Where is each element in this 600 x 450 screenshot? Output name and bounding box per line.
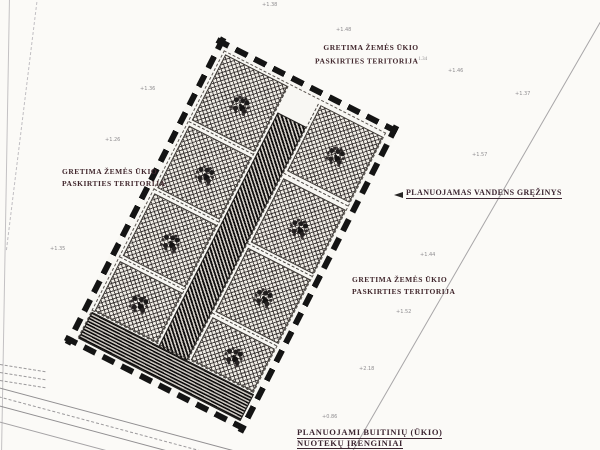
spot-elevation: +1.35 (50, 246, 65, 252)
road-line-bottom-dashed (0, 395, 313, 450)
tree-symbol (297, 226, 301, 230)
road-line-bottom-2 (0, 404, 313, 450)
tree-symbol (238, 103, 242, 107)
spot-elevation: +1.44 (420, 252, 435, 258)
label-planned-sewage-facilities: PLANUOJAMI BUITINIŲ (ŪKIO) NUOTEKŲ ĮRENG… (297, 428, 442, 449)
spot-elevation: +2.18 (359, 366, 374, 372)
spot-elevation: +1.36 (140, 86, 155, 92)
tick-dash-left-1 (0, 364, 46, 372)
spot-elevation: +1.37 (515, 91, 530, 97)
tree-symbol (137, 302, 141, 306)
spot-elevation: +1.26 (105, 137, 120, 143)
spot-elevation: +1.46 (448, 68, 463, 74)
label-line: PASKIRTIES TERITORIJA1.34 (315, 54, 427, 68)
label-line: GRETIMA ŽEMĖS ŪKIO (62, 166, 165, 178)
spot-elevation: +1.57 (472, 152, 487, 158)
label-line: PASKIRTIES TERITORIJA (62, 178, 165, 190)
label-line: GRETIMA ŽEMĖS ŪKIO (315, 42, 427, 54)
tree-symbol (261, 296, 265, 300)
label-planned-water-borehole: PLANUOJAMAS VANDENS GRĘŽINYS (406, 188, 562, 199)
label-adjacent-territory-left: GRETIMA ŽEMĖS ŪKIO PASKIRTIES TERITORIJA (62, 166, 165, 190)
label-line: GRETIMA ŽEMĖS ŪKIO (352, 274, 455, 286)
label-adjacent-territory-top: GRETIMA ŽEMĖS ŪKIO PASKIRTIES TERITORIJA… (315, 42, 427, 68)
spot-elevation: +1.52 (396, 309, 411, 315)
boundary-line-right-diagonal (350, 0, 600, 450)
tree-symbol (203, 173, 207, 177)
label-line: PLANUOJAMI BUITINIŲ (ŪKIO) (297, 428, 442, 439)
label-line: PASKIRTIES TERITORIJA (352, 286, 455, 298)
site-plan-canvas: GRETIMA ŽEMĖS ŪKIO PASKIRTIES TERITORIJA… (0, 0, 600, 450)
tree-symbol (232, 354, 236, 358)
spot-elevation: +1.38 (262, 2, 277, 8)
tree-symbol (168, 240, 172, 244)
label-line: NUOTEKŲ ĮRENGINIAI (297, 439, 403, 450)
tick-dash-left-3 (0, 380, 46, 388)
planned-site-block (66, 38, 399, 432)
leader-arrow-icon (394, 192, 403, 198)
spot-elevation: +0.86 (322, 414, 337, 420)
spot-elevation-superscript: 1.34 (418, 57, 427, 62)
boundary-line-left-dashed (6, 0, 38, 250)
label-adjacent-territory-right: GRETIMA ŽEMĖS ŪKIO PASKIRTIES TERITORIJA (352, 274, 455, 298)
tree-symbol (334, 154, 338, 158)
spot-elevation: +1.48 (336, 27, 351, 33)
tick-dash-left-2 (0, 372, 46, 380)
